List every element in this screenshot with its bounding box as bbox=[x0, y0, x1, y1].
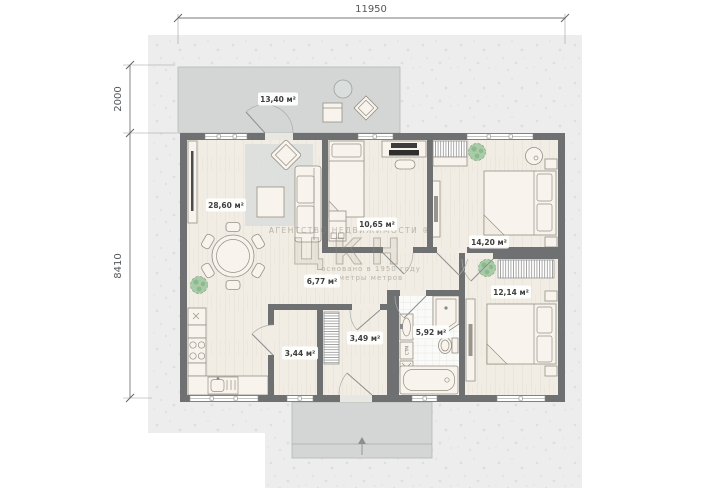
svg-text:14,20 м²: 14,20 м² bbox=[471, 238, 507, 247]
double-bed-1 bbox=[484, 171, 556, 235]
window bbox=[467, 134, 533, 140]
svg-text:10,65 м²: 10,65 м² bbox=[359, 220, 395, 229]
svg-text:13,40 м²: 13,40 м² bbox=[260, 95, 296, 104]
plant-icon bbox=[191, 277, 208, 294]
washing-machine: СТМ bbox=[400, 342, 413, 359]
room-label-bedroom1: 14,20 м² bbox=[469, 236, 509, 249]
washing-machine-label: СТМ bbox=[405, 346, 410, 355]
svg-text:28,60 м²: 28,60 м² bbox=[208, 201, 244, 210]
room-label-terrace: 13,40 м² bbox=[258, 93, 298, 106]
room-label-bedroom2: 12,14 м² bbox=[491, 286, 531, 299]
floor-plan-svg: СТМ bbox=[0, 0, 710, 500]
wardrobe-bedroom1 bbox=[433, 141, 467, 166]
room-label-storage: 3,44 м² bbox=[282, 347, 318, 360]
floor-plan-page: СТМ bbox=[0, 0, 710, 500]
window bbox=[358, 134, 393, 140]
stove bbox=[188, 338, 206, 363]
wardrobe-bedroom2 bbox=[498, 260, 554, 278]
kitchen-counter-bottom bbox=[188, 376, 268, 395]
dining-table bbox=[212, 235, 254, 277]
window bbox=[287, 396, 313, 402]
room-label-living: 28,60 м² bbox=[206, 199, 246, 212]
double-bed-2 bbox=[487, 304, 556, 364]
dimension-side-lower-value: 8410 bbox=[113, 253, 124, 278]
nightstand bbox=[545, 159, 557, 169]
svg-text:5,92 м²: 5,92 м² bbox=[416, 328, 447, 337]
tv-unit bbox=[188, 141, 197, 223]
window bbox=[190, 396, 258, 402]
plant-icon bbox=[479, 260, 496, 277]
bathtub bbox=[400, 366, 458, 394]
plant-icon bbox=[469, 144, 486, 161]
kitchen-counter-2 bbox=[188, 363, 206, 376]
nightstand bbox=[545, 366, 557, 376]
svg-text:3,49 м²: 3,49 м² bbox=[350, 334, 381, 343]
svg-text:12,14 м²: 12,14 м² bbox=[493, 288, 529, 297]
desk bbox=[382, 141, 426, 157]
nightstand bbox=[545, 291, 557, 301]
kitchen-cabinet bbox=[188, 308, 206, 325]
pouf bbox=[526, 148, 543, 165]
svg-text:6,77 м²: 6,77 м² bbox=[307, 277, 338, 286]
svg-text:3,44 м²: 3,44 м² bbox=[285, 349, 316, 358]
window bbox=[497, 396, 545, 402]
window bbox=[205, 134, 247, 140]
room-label-office: 10,65 м² bbox=[357, 218, 397, 231]
wardrobe-entry bbox=[324, 312, 339, 364]
terrace-chair-square bbox=[323, 103, 342, 122]
room-label-bathroom: 5,92 м² bbox=[413, 326, 449, 339]
room-label-hallway: 6,77 м² bbox=[304, 275, 340, 288]
sink bbox=[400, 314, 413, 340]
dimension-top-value: 11950 bbox=[355, 4, 387, 15]
nightstand bbox=[545, 237, 557, 247]
room-label-entry: 3,49 м² bbox=[347, 332, 383, 345]
coffee-table bbox=[257, 187, 284, 217]
dresser bbox=[432, 181, 440, 237]
single-bed bbox=[329, 141, 364, 217]
watermark-line2: основано в 1950 году bbox=[321, 265, 421, 273]
toilet bbox=[439, 338, 459, 354]
dimension-side-upper-value: 2000 bbox=[113, 86, 124, 111]
entry-porch bbox=[292, 402, 432, 458]
window bbox=[412, 396, 437, 402]
terrace-table bbox=[334, 80, 352, 98]
dresser bbox=[466, 299, 475, 381]
desk-chair bbox=[395, 160, 415, 169]
watermark-line3: метры метров bbox=[339, 274, 403, 282]
kitchen-counter bbox=[188, 325, 206, 338]
